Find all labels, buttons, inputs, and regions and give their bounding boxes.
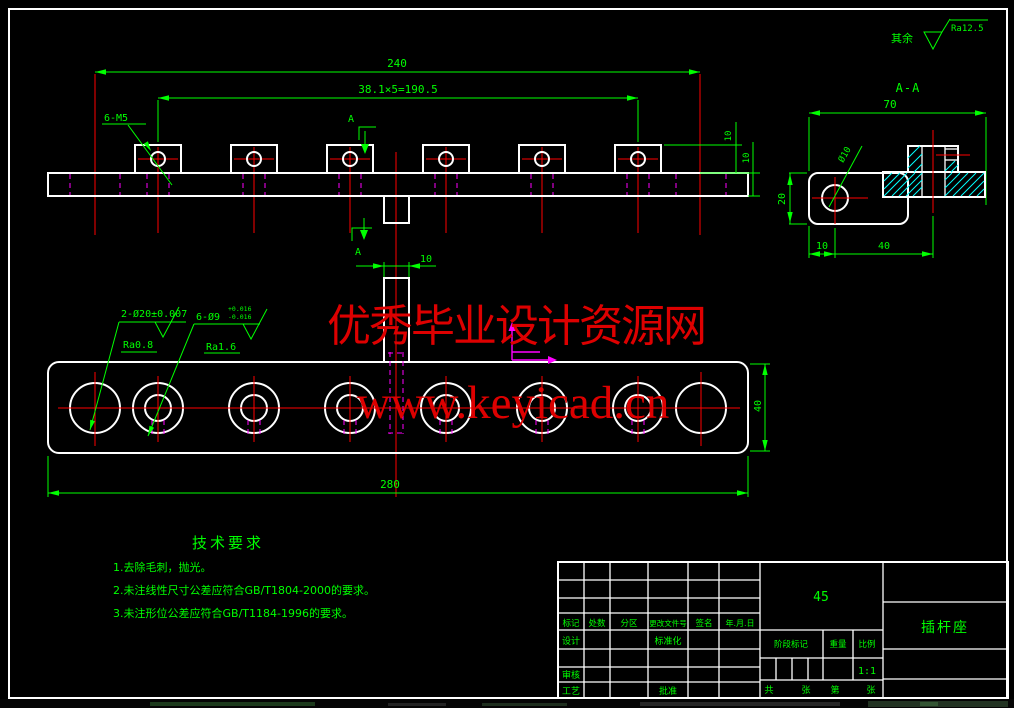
- section-letter-bottom: A: [355, 247, 361, 258]
- taskbar-strip: [0, 699, 1014, 708]
- dim-tab-height: 10: [724, 131, 734, 142]
- dim-left-10: 10: [816, 241, 828, 252]
- label-cbore-holes: 6-Ø9: [196, 311, 220, 323]
- dim-pitch: 38.1×5=190.5: [358, 83, 437, 96]
- tech-req-title: 技术要求: [192, 534, 264, 552]
- rev-header-date: 年.月.日: [725, 618, 754, 628]
- dim-bar-height: 10: [742, 153, 752, 164]
- section-title: A-A: [896, 81, 921, 95]
- dim-overall-240: 240: [387, 57, 407, 70]
- general-roughness-value: Ra12.5: [951, 24, 984, 34]
- label-sheet-total: 共: [764, 685, 773, 696]
- section-letter-top: A: [348, 114, 354, 125]
- dim-width-70: 70: [883, 98, 896, 111]
- thread-label-6m5: 6-M5: [104, 113, 128, 124]
- dim-height-40: 40: [753, 400, 764, 412]
- canvas-background: [0, 0, 1014, 708]
- label-cbore-ra: Ra1.6: [206, 342, 236, 353]
- tech-req-item-2: 2.未注线性尺寸公差应符合GB/T1804-2000的要求。: [113, 583, 375, 597]
- rev-header-fenqu: 分区: [620, 619, 638, 629]
- cad-drawing-canvas[interactable]: 240 38.1×5=190.5 6-M5 10 10 A: [0, 0, 1014, 708]
- label-process: 工艺: [562, 686, 580, 697]
- label-dowel-ra: Ra0.8: [123, 340, 153, 351]
- label-scale: 比例: [858, 639, 875, 650]
- qiyu-label: 其余: [891, 31, 913, 45]
- watermark-line2: www.keyicad.cn: [357, 377, 670, 429]
- label-weight: 重量: [829, 639, 847, 650]
- label-sheet-no: 第: [830, 684, 839, 696]
- dim-height-20: 20: [777, 193, 788, 205]
- label-stage-mark: 阶段标记: [774, 639, 809, 650]
- label-sheet-unit1: 张: [801, 685, 810, 696]
- watermark-line1: 优秀毕业设计资源网: [327, 302, 705, 351]
- label-standardization: 标准化: [654, 635, 681, 647]
- rev-header-chushu: 处数: [588, 618, 606, 629]
- material-value: 45: [813, 590, 829, 605]
- rev-header-biaoji: 标记: [562, 618, 580, 629]
- dim-tab-10: 10: [420, 254, 432, 265]
- part-name: 插杆座: [921, 620, 969, 636]
- label-audit: 审核: [562, 669, 580, 681]
- label-cbore-tol-up: +0.016: [228, 305, 252, 313]
- rev-header-genggai: 更改文件号: [649, 618, 687, 628]
- tech-req-item-1: 1.去除毛刺，抛光。: [113, 560, 212, 574]
- dim-overall-280: 280: [380, 478, 400, 491]
- tech-req-item-3: 3.未注形位公差应符合GB/T1184-1996的要求。: [113, 606, 353, 620]
- label-cbore-tol-dn: -0.016: [228, 313, 252, 321]
- rev-header-qianming: 签名: [695, 618, 712, 629]
- dim-boss-40: 40: [878, 241, 890, 252]
- label-design: 设计: [562, 635, 580, 647]
- scale-value: 1:1: [858, 666, 876, 677]
- label-sheet-unit2: 张: [866, 685, 875, 696]
- label-approve: 批准: [659, 685, 677, 697]
